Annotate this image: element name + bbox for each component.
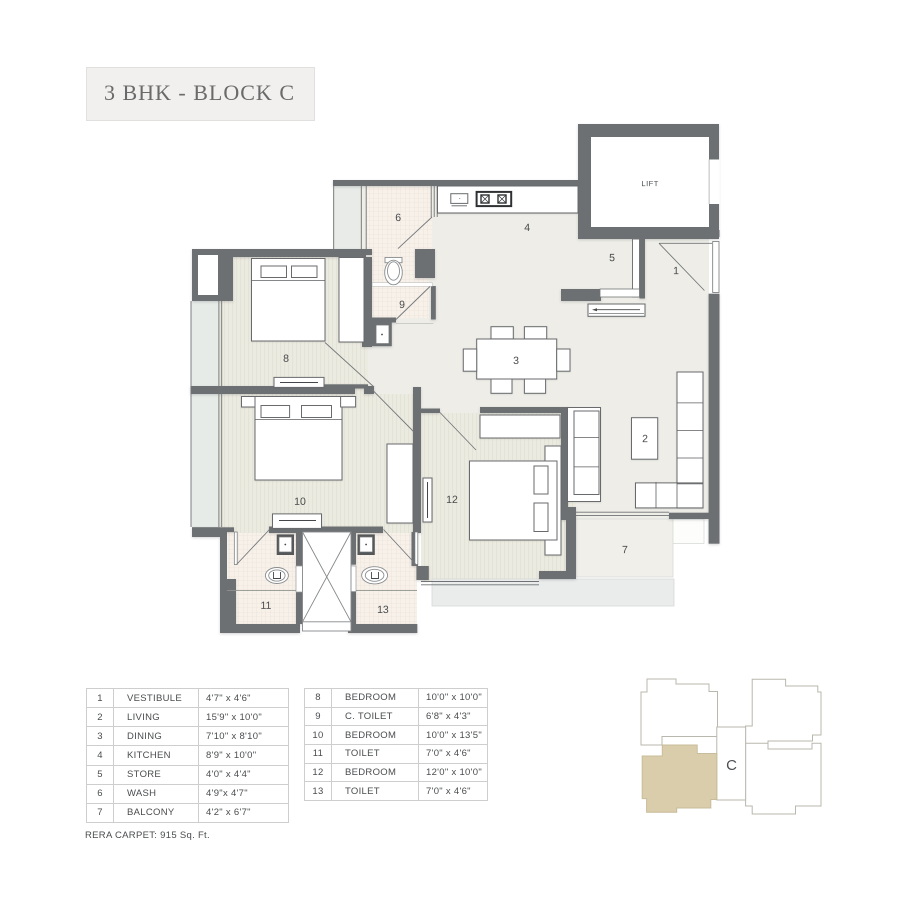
svg-text:7: 7 bbox=[622, 544, 628, 556]
svg-text:10: 10 bbox=[294, 496, 306, 508]
svg-text:12: 12 bbox=[446, 494, 458, 506]
svg-text:5: 5 bbox=[609, 252, 615, 264]
svg-text:1: 1 bbox=[673, 265, 679, 277]
svg-text:LIFT: LIFT bbox=[641, 179, 658, 188]
svg-text:4: 4 bbox=[524, 222, 530, 234]
svg-text:6: 6 bbox=[395, 212, 401, 224]
svg-text:8: 8 bbox=[283, 353, 289, 365]
svg-text:9: 9 bbox=[399, 299, 405, 311]
svg-text:13: 13 bbox=[377, 604, 389, 616]
svg-text:11: 11 bbox=[260, 600, 271, 612]
svg-text:2: 2 bbox=[642, 433, 648, 445]
svg-text:C: C bbox=[726, 757, 737, 774]
svg-text:3: 3 bbox=[513, 355, 519, 367]
